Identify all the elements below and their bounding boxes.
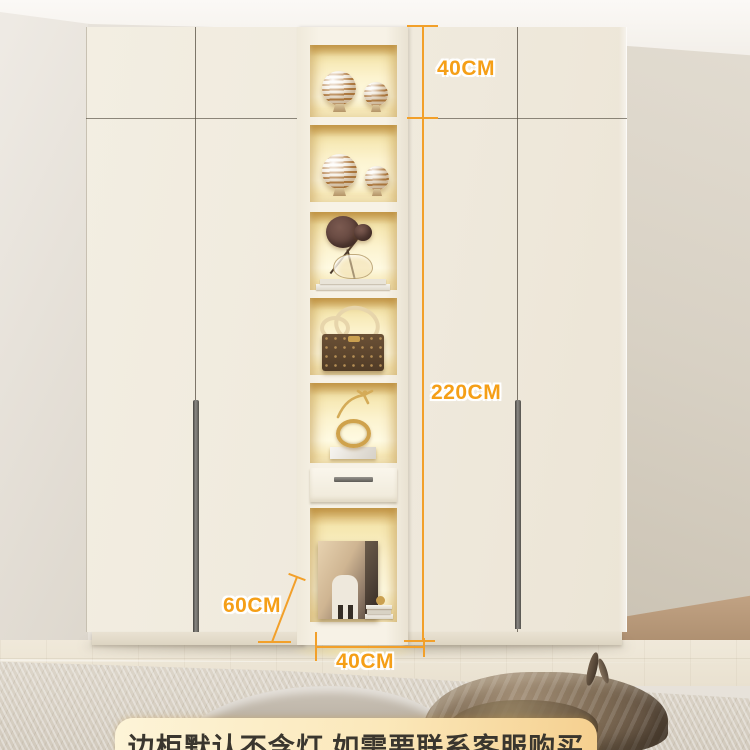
ornament-pedestal <box>371 105 381 112</box>
left-wall <box>0 0 88 660</box>
measure-tick-mid <box>407 117 438 119</box>
gold-trinket <box>376 596 385 605</box>
shelf-compartment-5 <box>310 383 397 463</box>
measure-tick-width-right <box>423 638 425 657</box>
product-screenshot: 40CM 220CM 60CM 40CM 边柜默认不含灯 如需要联系客服购买 <box>0 0 750 750</box>
artwork-doorway <box>348 605 353 619</box>
drawer-handle[interactable] <box>334 477 373 482</box>
marble-base <box>330 447 376 459</box>
door-handle-left[interactable] <box>193 400 199 632</box>
label-top-height: 40CM <box>437 57 495 81</box>
shelf-compartment-2 <box>310 125 397 202</box>
shelf-compartment-3 <box>310 212 397 290</box>
shelf-compartment-4 <box>310 298 397 375</box>
dried-hydrangea <box>354 224 372 241</box>
shelf-compartment-1 <box>310 45 397 117</box>
measure-tick-top <box>407 25 438 27</box>
top-cabinet-seam-left <box>86 118 298 119</box>
label-total-height: 220CM <box>431 381 501 405</box>
right-wall <box>626 0 750 640</box>
notice-text: 边柜默认不含灯 如需要联系客服购买 <box>128 726 585 750</box>
label-depth: 60CM <box>223 594 281 618</box>
plinth-right <box>404 632 622 645</box>
measure-tick-width-left <box>315 632 317 661</box>
ornament-ball-large <box>322 71 356 105</box>
ornament-pedestal <box>333 104 346 112</box>
label-column-width: 40CM <box>336 650 394 674</box>
gold-figure-sculpture <box>334 389 380 419</box>
ornament-ball-small <box>365 166 389 190</box>
ornament-pedestal <box>372 189 382 196</box>
artwork-building <box>332 575 358 619</box>
ornament-pedestal <box>333 188 346 196</box>
measure-tick-bottom <box>404 640 435 642</box>
bag-clasp <box>348 336 360 342</box>
drawer-front[interactable] <box>310 468 397 502</box>
notice-banner: 边柜默认不含灯 如需要联系客服购买 <box>115 718 597 750</box>
door-handle-right[interactable] <box>515 400 521 629</box>
ornament-ball-small <box>364 82 388 106</box>
book <box>366 605 392 609</box>
top-cabinet-seam-right <box>407 118 627 119</box>
book <box>367 609 391 614</box>
glass-vase <box>333 254 373 279</box>
book <box>365 614 393 619</box>
measure-tick-depth-bottom <box>258 641 291 643</box>
shelf-compartment-6 <box>310 508 397 622</box>
ornament-ball-large <box>322 154 357 189</box>
book <box>316 284 390 290</box>
book <box>320 279 386 284</box>
measure-line-width <box>315 646 425 648</box>
gold-ring-sculpture <box>336 419 371 448</box>
artwork-doorway <box>338 605 343 619</box>
